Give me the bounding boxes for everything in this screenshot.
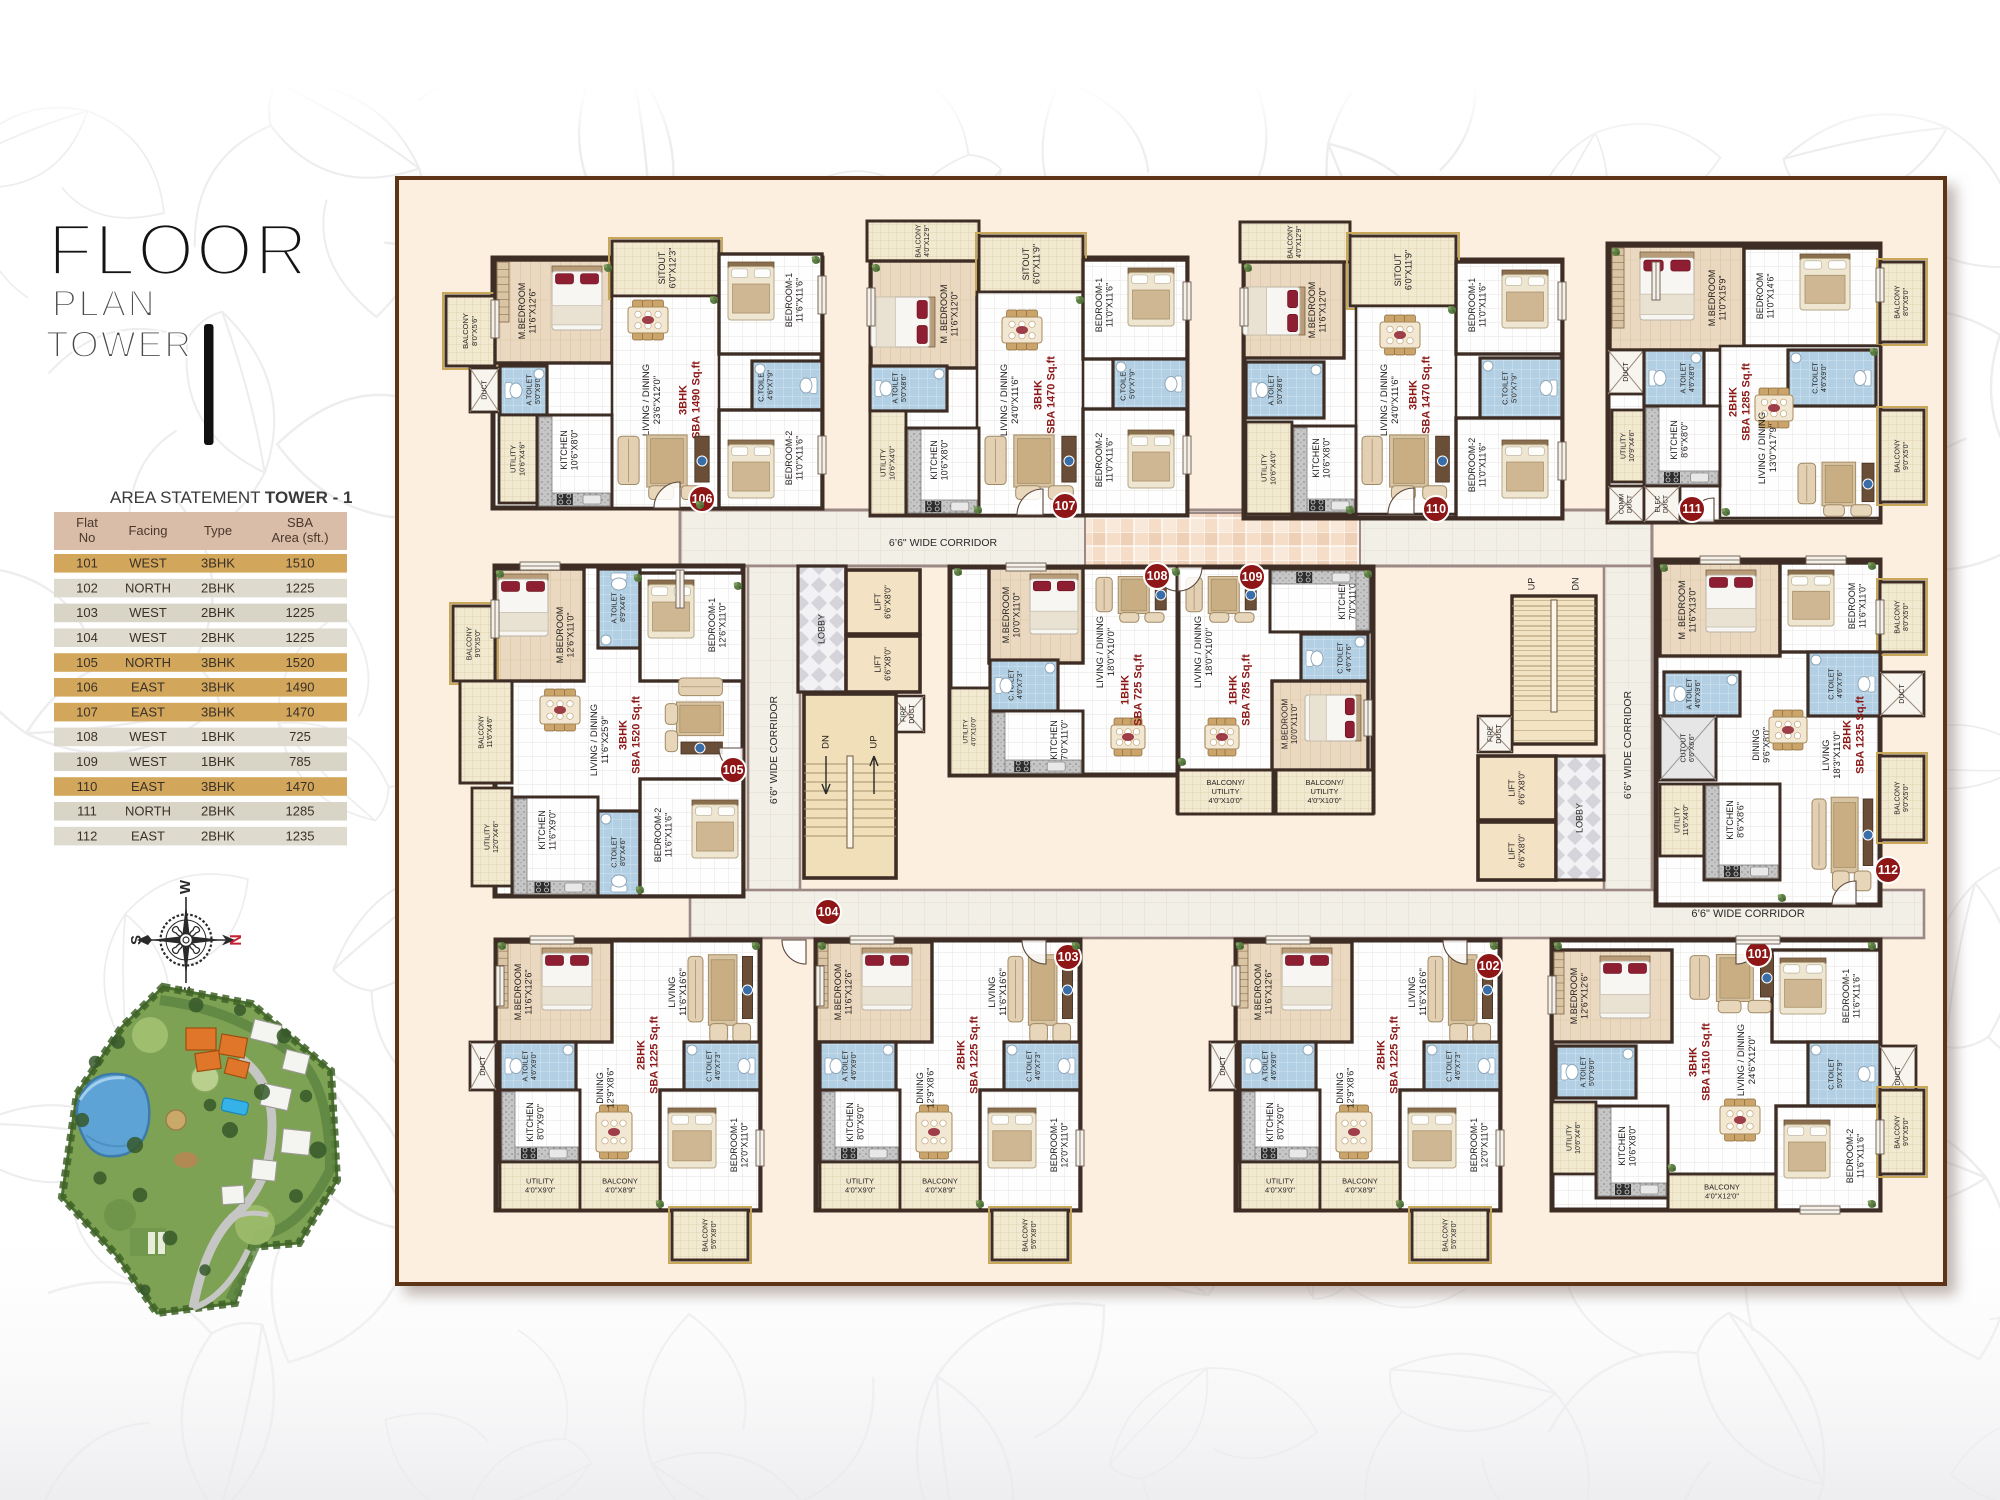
svg-text:9'0"X5'0": 9'0"X5'0" (1903, 784, 1910, 812)
svg-text:WEST: WEST (129, 556, 167, 571)
svg-text:10'6"X8'0": 10'6"X8'0" (1322, 438, 1332, 479)
svg-text:11'6"X11'6": 11'6"X11'6" (795, 278, 805, 323)
svg-text:3BHK: 3BHK (677, 385, 689, 415)
svg-text:BEDROOM-1: BEDROOM-1 (1094, 278, 1104, 333)
svg-text:6'0"X12'3": 6'0"X12'3" (668, 248, 678, 289)
svg-text:4'0"X10'0": 4'0"X10'0" (1208, 796, 1242, 805)
svg-text:11'6"X11'6": 11'6"X11'6" (664, 813, 674, 858)
svg-text:UTILITY: UTILITY (963, 719, 970, 744)
svg-text:1470: 1470 (286, 779, 315, 794)
svg-text:4'6"X8'0": 4'6"X8'0" (1689, 364, 1696, 392)
svg-text:M.BEDROOM: M.BEDROOM (833, 964, 843, 1021)
svg-text:10'0"X11'0": 10'0"X11'0" (1012, 592, 1022, 637)
svg-text:LIVING / DINING: LIVING / DINING (641, 364, 652, 436)
svg-text:LIVING / DINING: LIVING / DINING (999, 364, 1010, 436)
svg-text:11'0"X11'6": 11'0"X11'6" (1478, 443, 1488, 488)
svg-text:10'6"X4'6": 10'6"X4'6" (1575, 1122, 1582, 1154)
svg-text:1285: 1285 (286, 804, 315, 819)
svg-text:3BHK: 3BHK (1687, 1047, 1699, 1077)
svg-text:M .BEDROOM: M .BEDROOM (939, 284, 949, 343)
svg-text:DUCT: DUCT (1899, 684, 1906, 704)
svg-text:4'0"X8'9": 4'0"X8'9" (1345, 1185, 1375, 1194)
svg-text:12'6"X11'0": 12'6"X11'0" (718, 602, 728, 647)
svg-text:6’6" WIDE CORRIDOR: 6’6" WIDE CORRIDOR (1691, 908, 1804, 920)
svg-text:12'0"X11'0": 12'0"X11'0" (1060, 1122, 1070, 1167)
svg-text:5'6"X8'0": 5'6"X8'0" (711, 1221, 718, 1249)
svg-text:ELEC: ELEC (1655, 495, 1662, 512)
svg-text:11'6"X12'6": 11'6"X12'6" (524, 969, 534, 1014)
svg-text:104: 104 (818, 905, 839, 919)
svg-text:4'6"X9'0": 4'6"X9'0" (531, 1052, 538, 1080)
svg-text:DINING: DINING (915, 1072, 925, 1104)
svg-text:BEDROOM: BEDROOM (1755, 273, 1765, 320)
svg-text:4'0"X10'0": 4'0"X10'0" (1307, 796, 1341, 805)
svg-text:2BHK: 2BHK (955, 1040, 967, 1070)
svg-text:23'6"X12'0": 23'6"X12'0" (652, 376, 663, 424)
svg-text:S: S (128, 935, 145, 945)
svg-text:C.TOILET: C.TOILET (1338, 642, 1345, 674)
svg-text:8'6"X8'6": 8'6"X8'6" (1736, 802, 1746, 838)
svg-text:102: 102 (1479, 959, 1500, 973)
svg-text:3BHK: 3BHK (617, 720, 629, 750)
svg-text:4'0"X12'9": 4'0"X12'9" (924, 225, 931, 257)
svg-text:LIFT: LIFT (872, 655, 882, 672)
svg-text:11'6"X12'0": 11'6"X12'0" (1318, 287, 1328, 332)
svg-text:1225: 1225 (286, 630, 315, 645)
svg-text:103: 103 (1058, 950, 1079, 964)
svg-text:BEDROOM-1: BEDROOM-1 (1467, 278, 1477, 333)
svg-text:18'0"X10'0": 18'0"X10'0" (1106, 628, 1117, 676)
svg-text:10'6"X4'6": 10'6"X4'6" (517, 442, 526, 476)
svg-text:KITCHEN: KITCHEN (929, 440, 939, 480)
svg-text:Area (sft.): Area (sft.) (271, 530, 328, 545)
svg-text:SITOUT: SITOUT (1393, 253, 1403, 286)
svg-text:1225: 1225 (286, 605, 315, 620)
svg-text:LIVING: LIVING (667, 976, 678, 1007)
svg-text:BALCONY: BALCONY (922, 1176, 958, 1185)
svg-text:2BHK: 2BHK (201, 828, 235, 843)
svg-text:SBA 1225 Sq.ft: SBA 1225 Sq.ft (1388, 1016, 1400, 1094)
svg-text:8'0"X5'6": 8'0"X5'6" (470, 316, 479, 346)
svg-text:UP: UP (1526, 578, 1536, 591)
svg-text:11'6"X9'0": 11'6"X9'0" (548, 810, 558, 850)
svg-text:TOWER: TOWER (46, 324, 193, 365)
svg-text:8'0"X5'0": 8'0"X5'0" (1903, 603, 1910, 631)
svg-text:11'6"X12'6": 11'6"X12'6" (1264, 969, 1274, 1014)
svg-text:11'6"X16'6": 11'6"X16'6" (678, 968, 689, 1016)
svg-text:5'0"X7'9": 5'0"X7'9" (1509, 373, 1518, 403)
svg-text:10'6"X4'0": 10'6"X4'0" (1268, 451, 1277, 485)
svg-text:SBA 785 Sq.ft: SBA 785 Sq.ft (1240, 654, 1252, 726)
svg-text:4'0"X8'9": 4'0"X8'9" (605, 1185, 635, 1194)
svg-text:LOBBY: LOBBY (1574, 803, 1584, 833)
svg-text:2BHK: 2BHK (201, 605, 235, 620)
svg-text:BALCONY: BALCONY (703, 1218, 710, 1252)
svg-text:4'6"X7'6": 4'6"X7'6" (1346, 644, 1353, 672)
svg-text:LIVING: LIVING (1821, 739, 1832, 770)
svg-text:KITCHEN: KITCHEN (525, 1102, 535, 1142)
svg-text:A.TOILET: A.TOILET (1681, 362, 1688, 394)
svg-text:SBA 1225 Sq.ft: SBA 1225 Sq.ft (968, 1016, 980, 1094)
svg-text:4'6"X7'3": 4'6"X7'3" (1017, 671, 1024, 699)
svg-text:SITOUT: SITOUT (1021, 247, 1031, 280)
svg-text:C.TOILET: C.TOILET (1027, 1050, 1034, 1082)
svg-text:1235: 1235 (286, 828, 315, 843)
svg-text:BALCONY: BALCONY (479, 715, 486, 749)
svg-text:LIVING / DINING: LIVING / DINING (1095, 616, 1106, 688)
svg-text:M.BEDROOM: M.BEDROOM (1280, 699, 1289, 750)
svg-text:BALCONY: BALCONY (1443, 1218, 1450, 1252)
svg-text:5'6"X8'0": 5'6"X8'0" (1451, 1221, 1458, 1249)
svg-text:SBA 1225 Sq.ft: SBA 1225 Sq.ft (648, 1016, 660, 1094)
svg-text:SBA 1510 Sq.ft: SBA 1510 Sq.ft (1700, 1023, 1712, 1101)
svg-text:4'6"X9'6": 4'6"X9'6" (1695, 680, 1702, 708)
svg-text:24'0"X11'6": 24'0"X11'6" (1010, 376, 1021, 424)
svg-text:107: 107 (1055, 499, 1076, 513)
svg-text:11'6"X13'0": 11'6"X13'0" (1688, 587, 1698, 632)
svg-text:DUCT: DUCT (1496, 724, 1503, 744)
svg-text:BALCONY: BALCONY (1895, 600, 1902, 634)
svg-text:W: W (177, 879, 194, 894)
svg-text:UTILITY: UTILITY (508, 445, 517, 473)
svg-text:11'6"X25'9": 11'6"X25'9" (600, 716, 611, 764)
svg-text:BALCONY: BALCONY (1704, 1182, 1740, 1191)
svg-text:BALCONY: BALCONY (1895, 781, 1902, 815)
svg-text:12'9"X8'6": 12'9"X8'6" (606, 1068, 616, 1109)
svg-text:KITCHEN: KITCHEN (1311, 438, 1321, 478)
svg-text:UTILITY: UTILITY (526, 1176, 554, 1185)
svg-text:BEDROOM-1: BEDROOM-1 (729, 1118, 739, 1173)
svg-text:12'0"X11'0": 12'0"X11'0" (1480, 1122, 1490, 1167)
svg-text:M.BEDROOM: M.BEDROOM (1001, 587, 1011, 644)
svg-text:2BHK: 2BHK (1375, 1040, 1387, 1070)
svg-text:BEDROOM-2: BEDROOM-2 (1845, 1129, 1855, 1184)
svg-text:SBA 1470 Sq.ft: SBA 1470 Sq.ft (1420, 356, 1432, 434)
svg-text:2BHK: 2BHK (635, 1040, 647, 1070)
svg-text:BALCONY: BALCONY (1895, 285, 1902, 319)
svg-text:106: 106 (76, 680, 98, 695)
svg-text:5'0"X9'0": 5'0"X9'0" (1589, 1058, 1596, 1086)
svg-text:BALCONY: BALCONY (916, 224, 923, 258)
svg-text:C.TOILET: C.TOILET (1829, 1058, 1836, 1090)
svg-text:Type: Type (204, 523, 232, 538)
svg-text:112: 112 (1878, 863, 1898, 877)
svg-text:3BHK: 3BHK (201, 556, 235, 571)
svg-text:A.TOILET: A.TOILET (527, 374, 534, 406)
svg-text:4'0"X8'9": 4'0"X8'9" (925, 1185, 955, 1194)
svg-text:1BHK: 1BHK (1119, 675, 1131, 705)
svg-text:9'0"X5'0": 9'0"X5'0" (1903, 1118, 1910, 1146)
svg-text:12'6"X11'0": 12'6"X11'0" (566, 612, 576, 657)
svg-text:UTILITY: UTILITY (846, 1176, 874, 1185)
svg-text:UTILITY: UTILITY (1675, 807, 1682, 833)
svg-text:13'0"X17'9": 13'0"X17'9" (1768, 424, 1779, 472)
svg-text:110: 110 (77, 779, 98, 794)
svg-text:KITCHEN: KITCHEN (1669, 420, 1679, 460)
svg-text:3BHK: 3BHK (1032, 380, 1044, 410)
svg-text:DN: DN (1570, 578, 1580, 591)
svg-text:9'0"X5'0": 9'0"X5'0" (475, 629, 482, 657)
svg-text:UTILITY: UTILITY (1567, 1125, 1574, 1151)
svg-text:5'0"X8'6": 5'0"X8'6" (901, 374, 908, 402)
svg-text:11'6"X12'6": 11'6"X12'6" (528, 288, 538, 333)
svg-text:7'0"X11'0": 7'0"X11'0" (1060, 720, 1070, 760)
svg-text:WEST: WEST (129, 754, 167, 769)
svg-text:SBA 1490 Sq.ft: SBA 1490 Sq.ft (690, 361, 702, 439)
svg-text:EAST: EAST (131, 680, 165, 695)
svg-text:UTILITY: UTILITY (485, 824, 492, 850)
svg-text:11'6"X12'0": 11'6"X12'0" (950, 291, 960, 336)
svg-text:BALCONY: BALCONY (602, 1176, 638, 1185)
svg-text:24'0"X11'6": 24'0"X11'6" (1390, 376, 1401, 424)
svg-text:LIFT: LIFT (1506, 779, 1516, 796)
svg-text:LIVING / DINING: LIVING / DINING (589, 704, 600, 776)
svg-text:10'6"X8'0": 10'6"X8'0" (940, 440, 950, 481)
svg-text:725: 725 (289, 729, 311, 744)
svg-text:11'0"X15'9": 11'0"X15'9" (1718, 275, 1728, 320)
svg-text:M.BEDROOM: M.BEDROOM (555, 607, 565, 664)
svg-text:SBA 1470 Sq.ft: SBA 1470 Sq.ft (1045, 356, 1057, 434)
svg-text:BEDROOM-1: BEDROOM-1 (1049, 1118, 1059, 1173)
svg-text:UTILITY: UTILITY (1266, 1176, 1294, 1185)
svg-text:6’6" WIDE CORRIDOR: 6’6" WIDE CORRIDOR (1622, 691, 1634, 800)
svg-text:DUCT: DUCT (1895, 1066, 1902, 1086)
svg-text:FIRE: FIRE (1488, 726, 1495, 742)
svg-text:10'6"X8'0": 10'6"X8'0" (570, 430, 580, 471)
svg-text:5'0"X9'0": 5'0"X9'0" (535, 376, 542, 404)
svg-text:M.BEDROOM: M.BEDROOM (1307, 282, 1317, 339)
svg-text:LIFT: LIFT (872, 593, 882, 610)
svg-text:A.TOILET: A.TOILET (1687, 678, 1694, 710)
svg-text:BALCONY: BALCONY (1895, 1115, 1902, 1149)
svg-text:11'0"X11'6": 11'0"X11'6" (1478, 283, 1488, 328)
svg-text:DUCT: DUCT (481, 380, 488, 400)
svg-text:DINING: DINING (595, 1072, 605, 1104)
svg-text:BEDROOM-2: BEDROOM-2 (653, 808, 663, 863)
svg-text:BALCONY: BALCONY (1023, 1218, 1030, 1252)
svg-text:C.TOILET: C.TOILET (1813, 362, 1820, 394)
svg-text:3BHK: 3BHK (201, 704, 235, 719)
svg-text:SBA 1235 Sq.ft: SBA 1235 Sq.ft (1854, 696, 1866, 774)
svg-text:KITCHEN: KITCHEN (1617, 1126, 1627, 1166)
svg-text:4'6"X9'0": 4'6"X9'0" (851, 1052, 858, 1080)
svg-text:11'0"X11'6": 11'0"X11'6" (795, 436, 805, 481)
svg-text:3BHK: 3BHK (201, 680, 235, 695)
svg-text:11'0"X14'6": 11'0"X14'6" (1766, 273, 1776, 318)
svg-text:8'9"X4'6": 8'9"X4'6" (620, 594, 627, 622)
svg-text:785: 785 (289, 754, 311, 769)
svg-text:BALCONY: BALCONY (467, 626, 474, 660)
svg-text:4'0"X9'0": 4'0"X9'0" (525, 1185, 555, 1194)
svg-text:NORTH: NORTH (125, 580, 171, 595)
svg-text:12'9"X8'6": 12'9"X8'6" (1346, 1068, 1356, 1109)
svg-text:M.BEDROOM: M.BEDROOM (1253, 964, 1263, 1021)
svg-text:4'6"X7'3": 4'6"X7'3" (1035, 1052, 1042, 1080)
svg-text:UTILITY: UTILITY (1259, 454, 1268, 482)
svg-text:11'6"X4'0": 11'6"X4'0" (1683, 804, 1690, 836)
svg-text:M.BEDROOM: M.BEDROOM (1707, 270, 1717, 327)
svg-text:A.TOILET: A.TOILET (1269, 374, 1276, 406)
svg-text:4'6"X7'9": 4'6"X7'9" (765, 370, 774, 400)
svg-text:UTILITY: UTILITY (878, 449, 887, 477)
svg-text:4'0"X9'0": 4'0"X9'0" (1265, 1185, 1295, 1194)
svg-text:KITCHEN: KITCHEN (1049, 720, 1059, 760)
svg-text:18'0"X10'0": 18'0"X10'0" (1204, 628, 1215, 676)
svg-text:DUCT: DUCT (480, 1056, 487, 1076)
svg-text:WEST: WEST (129, 630, 167, 645)
svg-text:107: 107 (76, 704, 98, 719)
svg-text:C.TOILET: C.TOILET (612, 836, 619, 868)
svg-text:11'0"X11'6": 11'0"X11'6" (1105, 283, 1115, 328)
svg-text:4'6"X9'0": 4'6"X9'0" (1821, 364, 1828, 392)
svg-text:2BHK: 2BHK (1841, 720, 1853, 750)
svg-text:103: 103 (76, 605, 98, 620)
svg-text:DUCT: DUCT (909, 704, 916, 724)
svg-text:PLAN: PLAN (52, 283, 157, 324)
svg-text:KITCHEN: KITCHEN (1265, 1102, 1275, 1142)
svg-text:EAST: EAST (131, 828, 165, 843)
svg-text:M .BEDROOM: M .BEDROOM (1677, 580, 1687, 639)
svg-text:BALCONY/: BALCONY/ (1207, 778, 1246, 787)
svg-text:1225: 1225 (286, 580, 315, 595)
svg-text:2BHK: 2BHK (201, 580, 235, 595)
svg-text:1510: 1510 (286, 556, 315, 571)
svg-text:111: 111 (77, 804, 97, 819)
svg-text:8'0"X9'0": 8'0"X9'0" (856, 1104, 866, 1140)
svg-text:8'0"X5'0": 8'0"X5'0" (1903, 288, 1910, 316)
svg-text:SBA 1520 Sq.ft: SBA 1520 Sq.ft (630, 696, 642, 774)
svg-text:FLOOR: FLOOR (48, 210, 309, 291)
svg-text:1BHK: 1BHK (1227, 675, 1239, 705)
svg-text:CUTOUT: CUTOUT (1681, 733, 1688, 763)
svg-text:104: 104 (76, 630, 98, 645)
svg-text:SBA 1285 Sq.ft: SBA 1285 Sq.ft (1740, 363, 1752, 441)
svg-text:BEDROOM-1: BEDROOM-1 (1841, 969, 1851, 1024)
svg-text:SITOUT: SITOUT (657, 251, 667, 284)
svg-text:112: 112 (77, 828, 98, 843)
svg-text:8'0"X9'0": 8'0"X9'0" (536, 1104, 546, 1140)
svg-text:DUCT: DUCT (1627, 495, 1634, 513)
svg-text:1520: 1520 (286, 655, 315, 670)
svg-text:NORTH: NORTH (125, 655, 171, 670)
svg-text:6'6"X8'0": 6'6"X8'0" (882, 585, 892, 619)
svg-text:4'0"X9'0": 4'0"X9'0" (845, 1185, 875, 1194)
svg-text:6’6" WIDE CORRIDOR: 6’6" WIDE CORRIDOR (889, 537, 998, 549)
svg-text:BALCONY: BALCONY (1288, 225, 1295, 259)
svg-text:UTILITY: UTILITY (1212, 787, 1240, 796)
svg-text:11'6"X11'6": 11'6"X11'6" (1856, 1134, 1866, 1179)
svg-text:LOBBY: LOBBY (816, 614, 826, 644)
svg-text:C.TOILET: C.TOILET (707, 1050, 714, 1082)
svg-text:EAST: EAST (131, 779, 165, 794)
svg-text:A.TOILET: A.TOILET (843, 1050, 850, 1082)
svg-text:WEST: WEST (129, 729, 167, 744)
svg-text:KITCHEN: KITCHEN (1725, 800, 1735, 840)
svg-text:BEDROOM-1: BEDROOM-1 (707, 598, 717, 653)
svg-text:EAST: EAST (131, 704, 165, 719)
svg-text:M.BEDROOM: M.BEDROOM (517, 283, 527, 340)
svg-text:A.TOILET: A.TOILET (523, 1050, 530, 1082)
svg-text:12'6"X12'6": 12'6"X12'6" (1580, 973, 1590, 1019)
svg-text:DN: DN (821, 735, 832, 749)
svg-text:109: 109 (76, 754, 98, 769)
svg-text:5'0"X7'9": 5'0"X7'9" (1837, 1060, 1844, 1088)
svg-text:9'0"X5'0": 9'0"X5'0" (1903, 442, 1910, 470)
svg-text:8'0"X9'0": 8'0"X9'0" (1276, 1104, 1286, 1140)
svg-text:BEDROOM-2: BEDROOM-2 (784, 431, 794, 486)
svg-text:C.TOILET: C.TOILET (1500, 371, 1509, 405)
svg-text:5'6"X8'0": 5'6"X8'0" (1031, 1221, 1038, 1249)
svg-text:6'0"X11'9": 6'0"X11'9" (1032, 244, 1042, 284)
svg-text:KITCHEN: KITCHEN (559, 430, 569, 470)
svg-text:KITCHEN: KITCHEN (845, 1102, 855, 1142)
svg-text:6'6"X6'6": 6'6"X6'6" (1689, 734, 1696, 762)
svg-text:M.BEDROOM: M.BEDROOM (1569, 968, 1579, 1025)
svg-text:1470: 1470 (286, 704, 315, 719)
svg-text:BALCONY: BALCONY (1895, 439, 1902, 473)
svg-text:DINING: DINING (1335, 1072, 1345, 1104)
svg-text:109: 109 (1242, 570, 1263, 584)
svg-text:5'0"X8'6": 5'0"X8'6" (1277, 376, 1284, 404)
svg-text:11'0"X11'6": 11'0"X11'6" (1105, 438, 1115, 483)
svg-text:WEST: WEST (129, 605, 167, 620)
svg-text:C.TOILET: C.TOILET (1829, 668, 1836, 700)
svg-text:3BHK: 3BHK (201, 655, 235, 670)
svg-text:No: No (79, 530, 96, 545)
svg-text:2BHK: 2BHK (201, 804, 235, 819)
svg-text:BALCONY/: BALCONY/ (1306, 778, 1345, 787)
svg-text:111: 111 (1682, 502, 1702, 516)
svg-text:5'0"X7'9": 5'0"X7'9" (1127, 369, 1136, 399)
svg-text:6'6"X8'0": 6'6"X8'0" (1516, 834, 1526, 868)
svg-text:AREA STATEMENT TOWER - 1: AREA STATEMENT TOWER - 1 (110, 488, 352, 507)
svg-text:SBA 725 Sq.ft: SBA 725 Sq.ft (1132, 654, 1144, 726)
svg-text:BALCONY: BALCONY (461, 313, 470, 349)
svg-text:110: 110 (1426, 502, 1446, 516)
svg-text:Facing: Facing (128, 523, 167, 538)
svg-text:4'6"X9'0": 4'6"X9'0" (1271, 1052, 1278, 1080)
svg-text:2BHK: 2BHK (1727, 387, 1739, 417)
svg-text:11'6"X4'6": 11'6"X4'6" (487, 716, 494, 748)
svg-text:BEDROOM-1: BEDROOM-1 (784, 273, 794, 328)
svg-text:DUCT: DUCT (1623, 362, 1630, 382)
svg-text:LIVING / DINING: LIVING / DINING (1379, 364, 1390, 436)
svg-text:11'6"X11'0": 11'6"X11'0" (1858, 584, 1868, 629)
svg-text:3BHK: 3BHK (201, 779, 235, 794)
svg-text:C.TOILET: C.TOILET (1447, 1050, 1454, 1082)
svg-text:N: N (228, 934, 245, 946)
svg-text:102: 102 (76, 580, 98, 595)
svg-text:101: 101 (76, 556, 98, 571)
svg-text:A.TOILET: A.TOILET (1263, 1050, 1270, 1082)
svg-text:DINING: DINING (1751, 729, 1761, 761)
svg-text:6'6"X8'0": 6'6"X8'0" (882, 647, 892, 681)
svg-text:11'6"X11'6": 11'6"X11'6" (1852, 974, 1862, 1019)
svg-text:Flat: Flat (76, 515, 98, 530)
svg-text:12'0"X11'0": 12'0"X11'0" (740, 1122, 750, 1167)
svg-text:KITCHEN: KITCHEN (1337, 580, 1347, 620)
svg-text:LIVING / DINING: LIVING / DINING (1736, 1024, 1747, 1096)
svg-text:6'6"X8'0": 6'6"X8'0" (1516, 771, 1526, 805)
svg-text:M.BEDROOM: M.BEDROOM (513, 964, 523, 1021)
svg-text:10'9"X4'6": 10'9"X4'6" (1629, 430, 1636, 462)
svg-text:UP: UP (869, 735, 880, 748)
svg-text:24'6"X12'0": 24'6"X12'0" (1747, 1036, 1758, 1084)
svg-text:FIRE: FIRE (901, 706, 908, 722)
svg-text:A.TOILET: A.TOILET (1581, 1056, 1588, 1088)
svg-text:KITCHEN: KITCHEN (537, 810, 547, 850)
svg-text:10'6"X4'0": 10'6"X4'0" (887, 446, 896, 480)
